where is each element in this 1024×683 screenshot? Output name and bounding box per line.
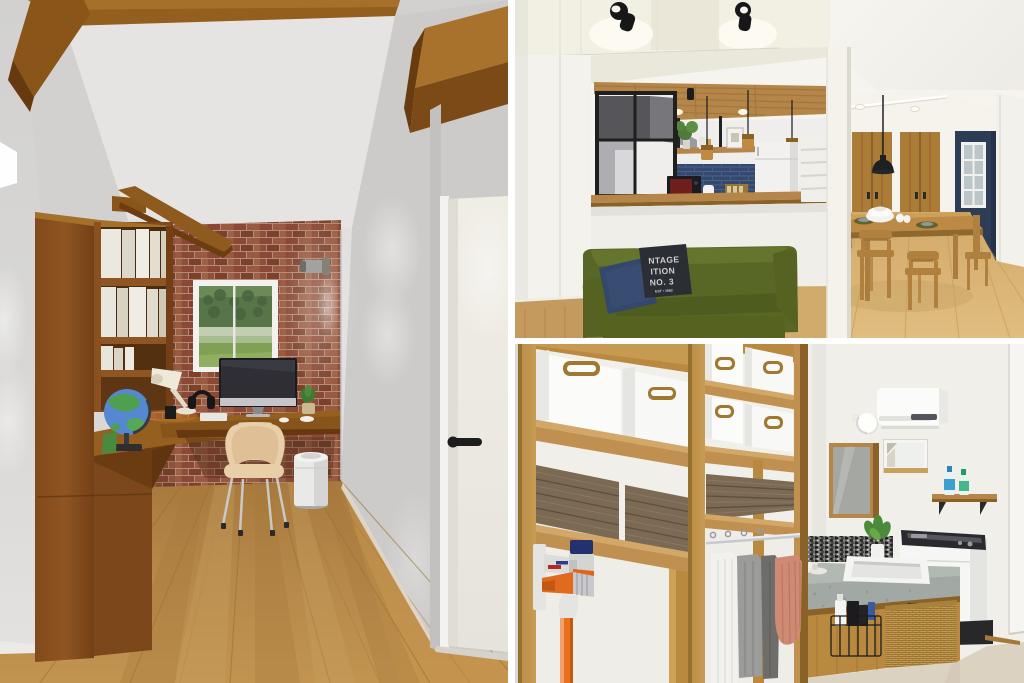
svg-text:NTAGE: NTAGE	[648, 254, 680, 266]
svg-text:ITION: ITION	[650, 265, 675, 276]
svg-text:NO. 3: NO. 3	[649, 276, 674, 287]
